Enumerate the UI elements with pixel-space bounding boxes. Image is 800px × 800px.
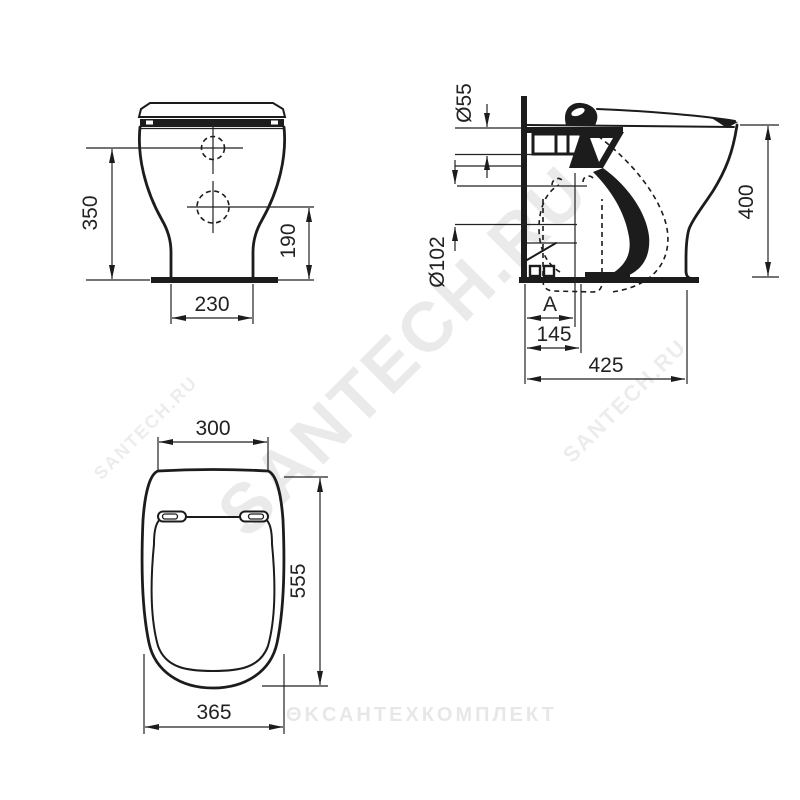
front-view: 350 190 230: [79, 103, 314, 324]
watermark-right: SANTECH.RU: [558, 334, 692, 468]
front-seat-notch-right: [271, 121, 278, 125]
trap-dashed-bump-2: [583, 176, 594, 182]
dim-a-label: A: [543, 293, 557, 316]
dim-300-label: 300: [195, 417, 230, 440]
front-body-left-outline: [139, 127, 171, 279]
top-seat-outline: [152, 544, 275, 671]
dim-145-label: 145: [536, 323, 571, 346]
technical-drawing-page: SANTECH.RU SANTECH.RU SANTECH.RU ΘΚ САНТ…: [0, 0, 800, 800]
santehkomplekt-logo-icon: ΘΚ: [286, 704, 322, 726]
front-dim-350: 350: [79, 149, 150, 280]
side-seat-line: [527, 125, 734, 127]
side-fixing-hole-2: [544, 266, 554, 276]
watermark-bottom-text: САНТЕХКОМПЛЕКТ: [322, 704, 557, 726]
dim-350-label: 350: [79, 195, 102, 230]
side-dim-400: 400: [735, 125, 779, 277]
front-seat-band: [140, 119, 284, 127]
front-seat-notch-left: [146, 121, 153, 125]
front-floor-line: [151, 277, 278, 283]
drawing-svg: SANTECH.RU SANTECH.RU SANTECH.RU ΘΚ САНТ…: [0, 0, 800, 800]
side-wall-line: [521, 96, 527, 282]
d55-label: Ø55: [453, 83, 476, 123]
side-seat-hinge: [565, 103, 597, 126]
front-dim-190: 190: [277, 208, 314, 280]
dim-400-label: 400: [735, 184, 758, 219]
dim-230-label: 230: [194, 293, 229, 316]
d102-label: Ø102: [426, 236, 449, 287]
top-dim-365: 365: [144, 654, 284, 734]
side-bowl-outline: [686, 125, 737, 279]
dim-425-label: 425: [588, 354, 623, 377]
dim-555-label: 555: [287, 563, 310, 598]
watermark-left: SANTECH.RU: [90, 372, 202, 484]
side-outlet-base: [585, 272, 630, 280]
front-dim-230: 230: [171, 284, 253, 324]
side-dim-a: A: [527, 293, 573, 318]
front-upper-hole-crosshair: [86, 122, 243, 174]
dim-365-label: 365: [196, 701, 231, 724]
front-lid: [139, 103, 285, 117]
dim-190-label: 190: [277, 223, 300, 258]
